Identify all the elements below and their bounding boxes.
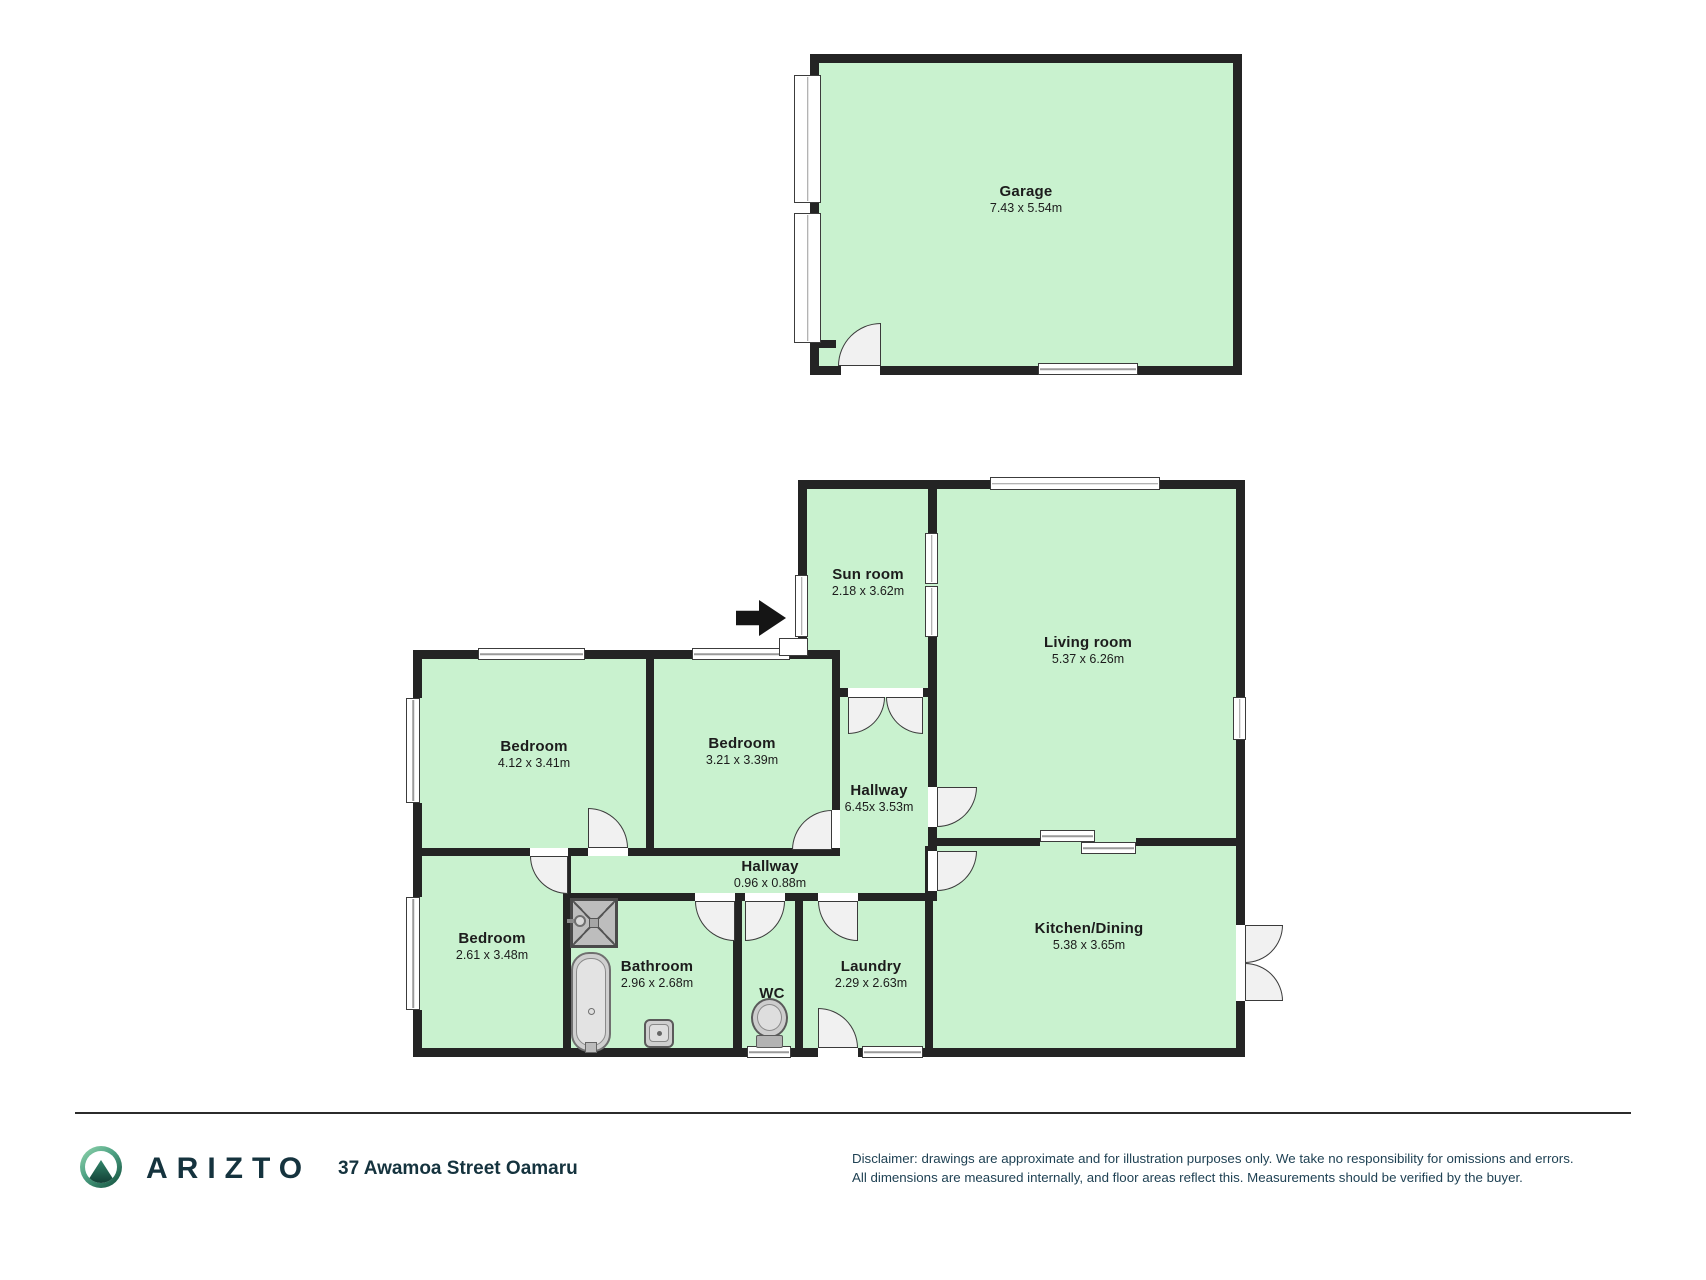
wall bbox=[810, 54, 1242, 63]
room-name: Hallway bbox=[845, 782, 914, 799]
wall bbox=[1138, 366, 1242, 375]
window bbox=[795, 575, 808, 637]
room-label-wc: WC bbox=[759, 985, 784, 1002]
entry-arrow-icon bbox=[736, 600, 786, 636]
room-dims: 2.96 x 2.68m bbox=[621, 976, 693, 990]
room-dims: 7.43 x 5.54m bbox=[990, 201, 1062, 215]
wall bbox=[1136, 838, 1245, 846]
wall bbox=[858, 893, 933, 901]
sink-drain bbox=[657, 1031, 662, 1036]
door-opening bbox=[832, 810, 840, 848]
bathtub-drain bbox=[588, 1008, 595, 1015]
wall bbox=[832, 654, 840, 810]
wall bbox=[923, 688, 937, 697]
wall bbox=[785, 893, 818, 901]
room-label-living: Living room 5.37 x 6.26m bbox=[1044, 634, 1132, 666]
wall bbox=[1236, 489, 1245, 697]
room-label-hallway-small: Hallway 0.96 x 0.88m bbox=[734, 858, 806, 890]
wall bbox=[413, 1010, 422, 1048]
room-dims: 5.37 x 6.26m bbox=[1044, 652, 1132, 666]
footer-divider bbox=[75, 1112, 1631, 1114]
door-opening bbox=[848, 688, 923, 697]
wall bbox=[819, 340, 836, 348]
wall bbox=[928, 838, 1040, 846]
wall bbox=[413, 803, 422, 848]
room-dims: 4.12 x 3.41m bbox=[498, 756, 570, 770]
window bbox=[1038, 363, 1138, 375]
wall bbox=[1233, 54, 1242, 375]
window bbox=[925, 533, 938, 584]
wall bbox=[1160, 480, 1245, 489]
room-label-bathroom: Bathroom 2.96 x 2.68m bbox=[621, 958, 693, 990]
wall bbox=[413, 848, 530, 856]
window bbox=[925, 586, 938, 637]
room-name: Hallway bbox=[734, 858, 806, 875]
room-name: Bedroom bbox=[706, 735, 778, 752]
room-name: Kitchen/Dining bbox=[1035, 920, 1144, 937]
mountain-icon bbox=[85, 1155, 117, 1183]
room-label-hallway-main: Hallway 6.45x 3.53m bbox=[845, 782, 914, 814]
toilet-inner bbox=[757, 1004, 782, 1031]
window bbox=[406, 897, 420, 1010]
wall bbox=[923, 1048, 1245, 1057]
door-opening bbox=[928, 787, 937, 827]
room-dims: 0.96 x 0.88m bbox=[734, 876, 806, 890]
disclaimer-text: Disclaimer: drawings are approximate and… bbox=[852, 1150, 1672, 1187]
bathtub-inner bbox=[576, 958, 606, 1046]
door-opening bbox=[818, 1048, 858, 1057]
wall bbox=[791, 1048, 818, 1057]
wall bbox=[795, 901, 803, 1048]
room-dims: 5.38 x 3.65m bbox=[1035, 938, 1144, 952]
window bbox=[862, 1046, 923, 1058]
door-opening bbox=[695, 893, 735, 901]
room-label-bedroom2: Bedroom 3.21 x 3.39m bbox=[706, 735, 778, 767]
room-name: Garage bbox=[990, 183, 1062, 200]
wall bbox=[413, 650, 478, 659]
room-name: Sun room bbox=[832, 566, 904, 583]
wall bbox=[928, 637, 937, 787]
door-opening bbox=[1236, 925, 1245, 1001]
arizto-logo-inner bbox=[85, 1151, 117, 1183]
entry-door bbox=[779, 638, 808, 656]
toilet-tank bbox=[756, 1035, 783, 1048]
wall bbox=[810, 366, 841, 375]
room-label-sunroom: Sun room 2.18 x 3.62m bbox=[832, 566, 904, 598]
room-label-kitchen: Kitchen/Dining 5.38 x 3.65m bbox=[1035, 920, 1144, 952]
wall bbox=[832, 848, 840, 856]
wall bbox=[585, 650, 692, 659]
wall bbox=[798, 480, 990, 489]
bathtub-tap bbox=[585, 1042, 597, 1053]
room-name: Bathroom bbox=[621, 958, 693, 975]
pass-through-window bbox=[1081, 842, 1136, 854]
room-dims: 3.21 x 3.39m bbox=[706, 753, 778, 767]
french-door-swing bbox=[1245, 925, 1283, 963]
room-dims: 2.18 x 3.62m bbox=[832, 584, 904, 598]
window bbox=[406, 698, 420, 803]
room-name: WC bbox=[759, 985, 784, 1002]
wall bbox=[1236, 740, 1245, 925]
window bbox=[794, 75, 821, 203]
room-dims: 2.61 x 3.48m bbox=[456, 948, 528, 962]
door-opening bbox=[530, 848, 568, 856]
wall bbox=[880, 366, 1038, 375]
room-name: Bedroom bbox=[498, 738, 570, 755]
room-label-bedroom3: Bedroom 2.61 x 3.48m bbox=[456, 930, 528, 962]
door-opening bbox=[928, 851, 937, 891]
window bbox=[692, 648, 790, 660]
room-dims: 6.45x 3.53m bbox=[845, 800, 914, 814]
room-label-bedroom1: Bedroom 4.12 x 3.41m bbox=[498, 738, 570, 770]
wall bbox=[646, 659, 654, 848]
disclaimer-line-1: Disclaimer: drawings are approximate and… bbox=[852, 1150, 1672, 1169]
brand-name: ARIZTO bbox=[146, 1152, 311, 1186]
property-address: 37 Awamoa Street Oamaru bbox=[338, 1158, 578, 1180]
room-name: Laundry bbox=[835, 958, 907, 975]
french-door-swing bbox=[1245, 963, 1283, 1001]
wall bbox=[568, 848, 588, 856]
disclaimer-line-2: All dimensions are measured internally, … bbox=[852, 1169, 1672, 1188]
wall bbox=[1236, 1000, 1245, 1048]
room-name: Living room bbox=[1044, 634, 1132, 651]
pass-through-window bbox=[1040, 830, 1095, 842]
door-opening bbox=[588, 848, 628, 856]
wall bbox=[735, 893, 745, 901]
room-name: Bedroom bbox=[456, 930, 528, 947]
door-opening bbox=[841, 366, 880, 375]
door-opening bbox=[818, 893, 858, 901]
window bbox=[990, 477, 1160, 490]
window bbox=[478, 648, 585, 660]
wall bbox=[928, 480, 937, 533]
room-dims: 2.29 x 2.63m bbox=[835, 976, 907, 990]
wall bbox=[798, 480, 807, 575]
room-label-garage: Garage 7.43 x 5.54m bbox=[990, 183, 1062, 215]
door-opening bbox=[745, 893, 785, 901]
shower-head-icon bbox=[574, 915, 586, 927]
window bbox=[794, 213, 821, 343]
arizto-logo-icon bbox=[80, 1146, 122, 1188]
window bbox=[1233, 697, 1246, 740]
room-label-laundry: Laundry 2.29 x 2.63m bbox=[835, 958, 907, 990]
floorplan-page: Garage 7.43 x 5.54m Sun room 2.18 x 3.62… bbox=[0, 0, 1706, 1280]
